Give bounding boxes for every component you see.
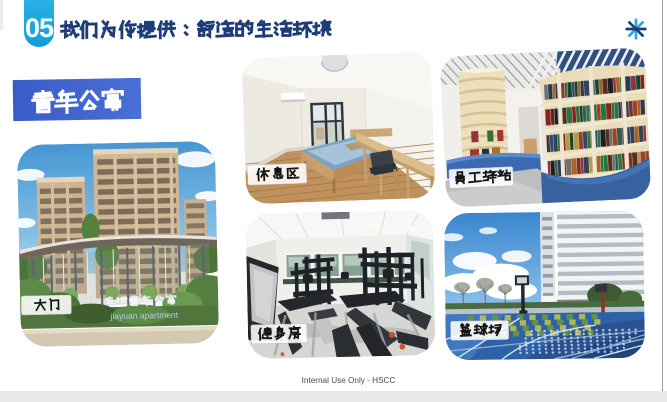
svg-text:jiayuan apartment: jiayuan apartment xyxy=(109,310,178,321)
